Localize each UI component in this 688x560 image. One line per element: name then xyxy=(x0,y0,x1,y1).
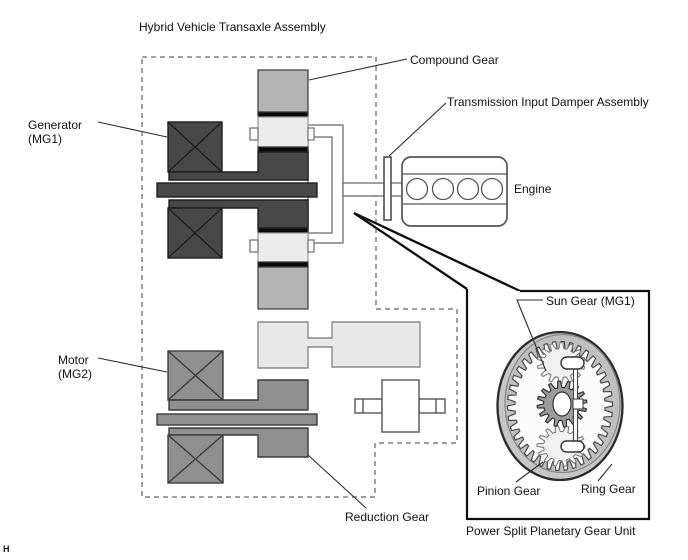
counter-gear xyxy=(258,322,420,368)
compound-gear-band-3 xyxy=(258,228,308,233)
input-shaft xyxy=(343,183,404,196)
compound-gear-bottom-block xyxy=(258,267,308,309)
inset-caption: Power Split Planetary Gear Unit xyxy=(466,524,636,538)
differential-right-stub xyxy=(419,399,445,413)
tab-top-right xyxy=(308,128,314,140)
compound-gear-bearing-top xyxy=(258,117,308,147)
differential-left-stub xyxy=(355,399,382,413)
carrier-hub xyxy=(573,399,583,409)
engine-cylinder-3 xyxy=(458,179,479,200)
input-shaft-hollow xyxy=(343,183,385,196)
engine-cylinder-2 xyxy=(433,179,454,200)
motor-mg2-assembly xyxy=(157,351,317,483)
differential-body xyxy=(382,380,419,432)
label-ring-gear: Ring Gear xyxy=(581,482,636,496)
label-reduction-gear: Reduction Gear xyxy=(345,510,429,524)
label-compound-gear: Compound Gear xyxy=(410,53,499,67)
leader-motor xyxy=(98,358,167,372)
page-marker: H xyxy=(3,544,10,554)
tab-bottom-right xyxy=(308,240,314,252)
label-damper: Transmission Input Damper Assembly xyxy=(447,95,649,109)
leader-generator xyxy=(98,122,167,137)
label-pinion-gear: Pinion Gear xyxy=(477,484,540,498)
sun-gear-bore xyxy=(553,392,571,416)
compound-gear-bearing-bottom xyxy=(258,233,308,262)
tab-top-left xyxy=(250,128,258,140)
tab-bottom-left xyxy=(250,240,258,252)
compound-gear-top-block xyxy=(258,70,308,112)
label-generator-sub: (MG1) xyxy=(28,132,62,146)
planetary-gear-unit xyxy=(498,332,623,480)
input-damper xyxy=(384,157,391,220)
leader-damper xyxy=(389,103,446,156)
pinion-top-pin xyxy=(561,357,584,369)
engine-cylinder-1 xyxy=(407,179,428,200)
label-generator: Generator xyxy=(28,118,82,132)
leader-compound-gear xyxy=(309,59,407,80)
label-motor: Motor xyxy=(58,353,89,367)
diagram-title: Hybrid Vehicle Transaxle Assembly xyxy=(139,20,326,34)
label-engine: Engine xyxy=(514,182,552,196)
transaxle-diagram: Hybrid Vehicle Transaxle Assembly Compou… xyxy=(0,0,688,560)
label-motor-sub: (MG2) xyxy=(58,367,92,381)
pinion-bottom-pin xyxy=(561,441,584,452)
compound-gear-band-4 xyxy=(258,262,308,267)
label-sun-gear: Sun Gear (MG1) xyxy=(546,294,635,308)
diagram-canvas: Hybrid Vehicle Transaxle Assembly Compou… xyxy=(0,0,688,560)
compound-gear-band-2 xyxy=(258,147,308,152)
compound-gear-band-1 xyxy=(258,112,308,117)
leader-reduction-gear xyxy=(308,455,366,508)
engine-block xyxy=(402,157,507,226)
mg1-shaft xyxy=(157,183,317,197)
differential xyxy=(355,380,445,432)
engine-cylinder-4 xyxy=(482,179,503,200)
mg2-shaft xyxy=(157,414,317,425)
